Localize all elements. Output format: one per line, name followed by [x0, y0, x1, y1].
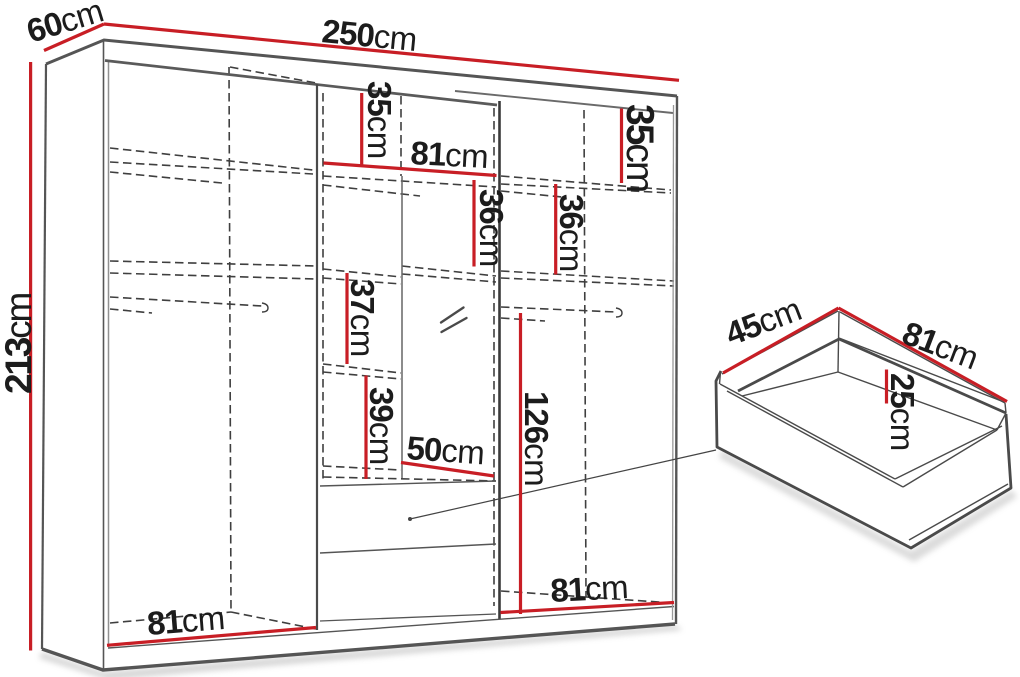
- svg-text:81cm: 81cm: [549, 568, 629, 609]
- svg-text:37cm: 37cm: [344, 279, 381, 357]
- svg-text:81cm: 81cm: [410, 134, 490, 175]
- svg-text:25cm: 25cm: [884, 373, 921, 451]
- svg-text:36cm: 36cm: [553, 194, 590, 272]
- svg-text:126cm: 126cm: [518, 391, 555, 486]
- svg-text:35cm: 35cm: [361, 81, 398, 159]
- svg-text:50cm: 50cm: [406, 429, 486, 471]
- svg-text:213cm: 213cm: [0, 294, 39, 394]
- svg-text:81cm: 81cm: [146, 599, 226, 642]
- svg-text:36cm: 36cm: [473, 189, 510, 267]
- svg-text:35cm: 35cm: [618, 104, 661, 191]
- svg-text:250cm: 250cm: [320, 12, 418, 58]
- svg-text:39cm: 39cm: [363, 387, 400, 465]
